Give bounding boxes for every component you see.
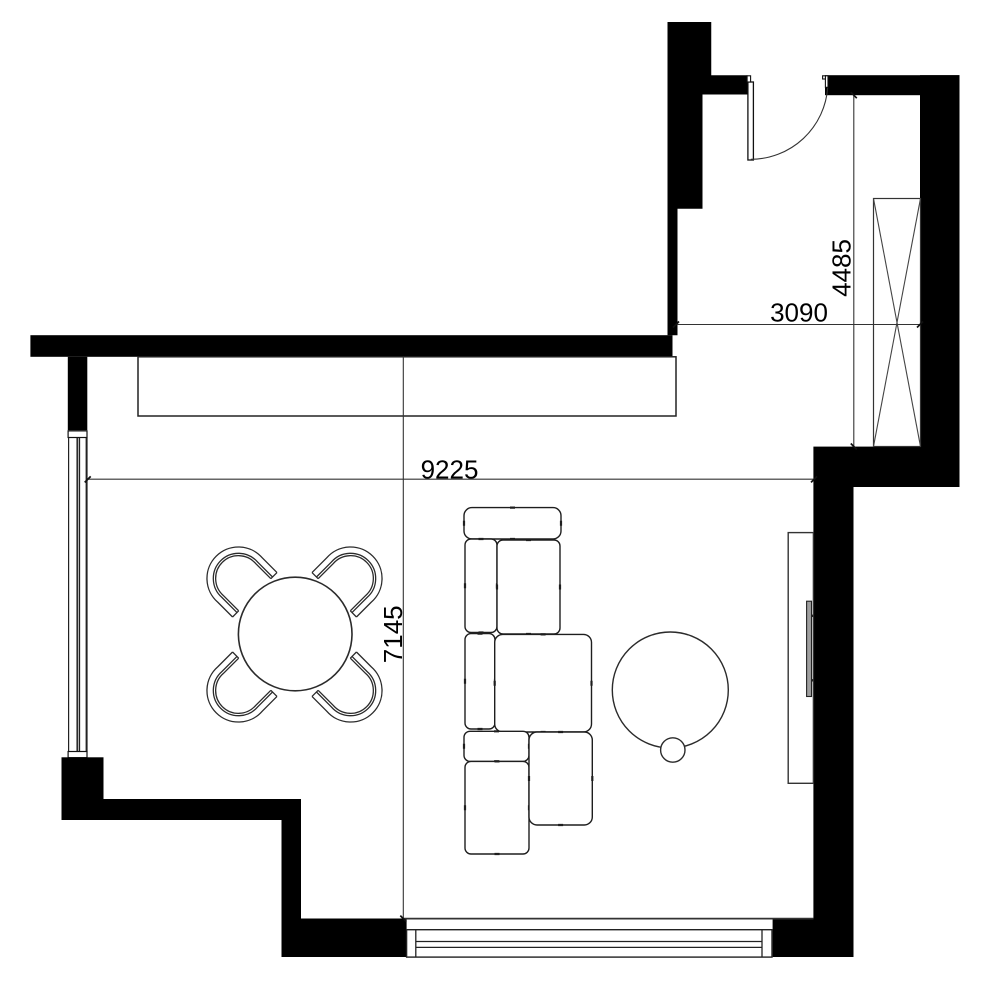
svg-text:4485: 4485	[827, 239, 857, 297]
svg-text:7145: 7145	[378, 605, 408, 663]
svg-text:9225: 9225	[421, 454, 479, 484]
svg-text:3090: 3090	[770, 298, 828, 328]
